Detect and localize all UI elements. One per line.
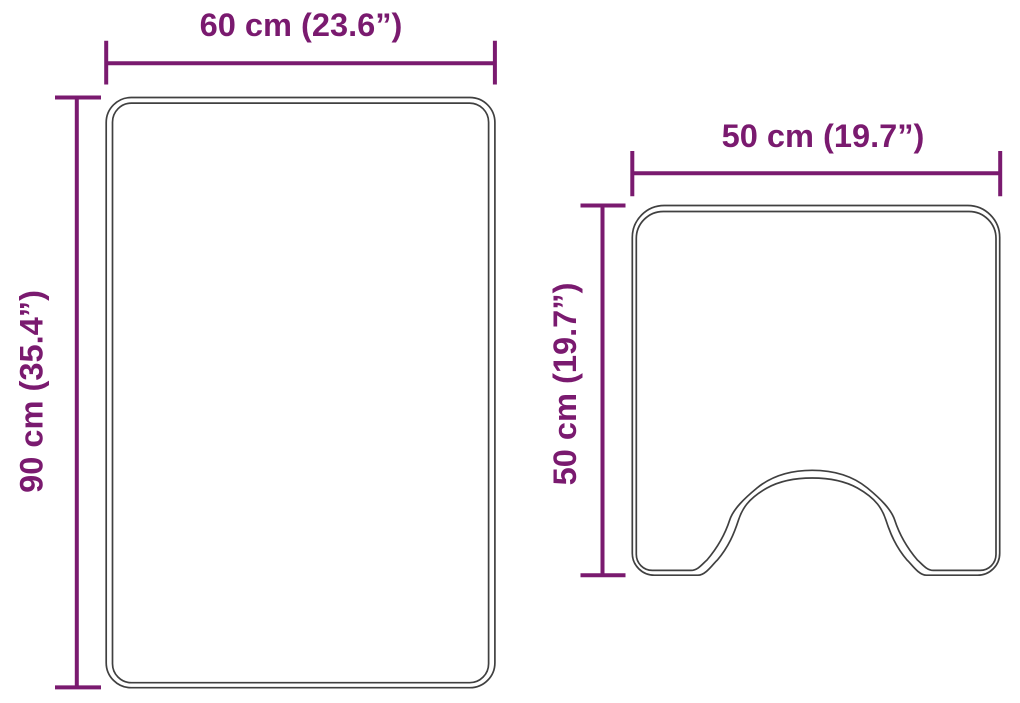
svg-text:50 cm (19.7”): 50 cm (19.7”) (722, 117, 925, 154)
svg-text:90 cm (35.4”): 90 cm (35.4”) (13, 290, 50, 493)
svg-text:50 cm (19.7”): 50 cm (19.7”) (546, 283, 583, 486)
svg-text:60 cm (23.6”): 60 cm (23.6”) (200, 6, 403, 43)
